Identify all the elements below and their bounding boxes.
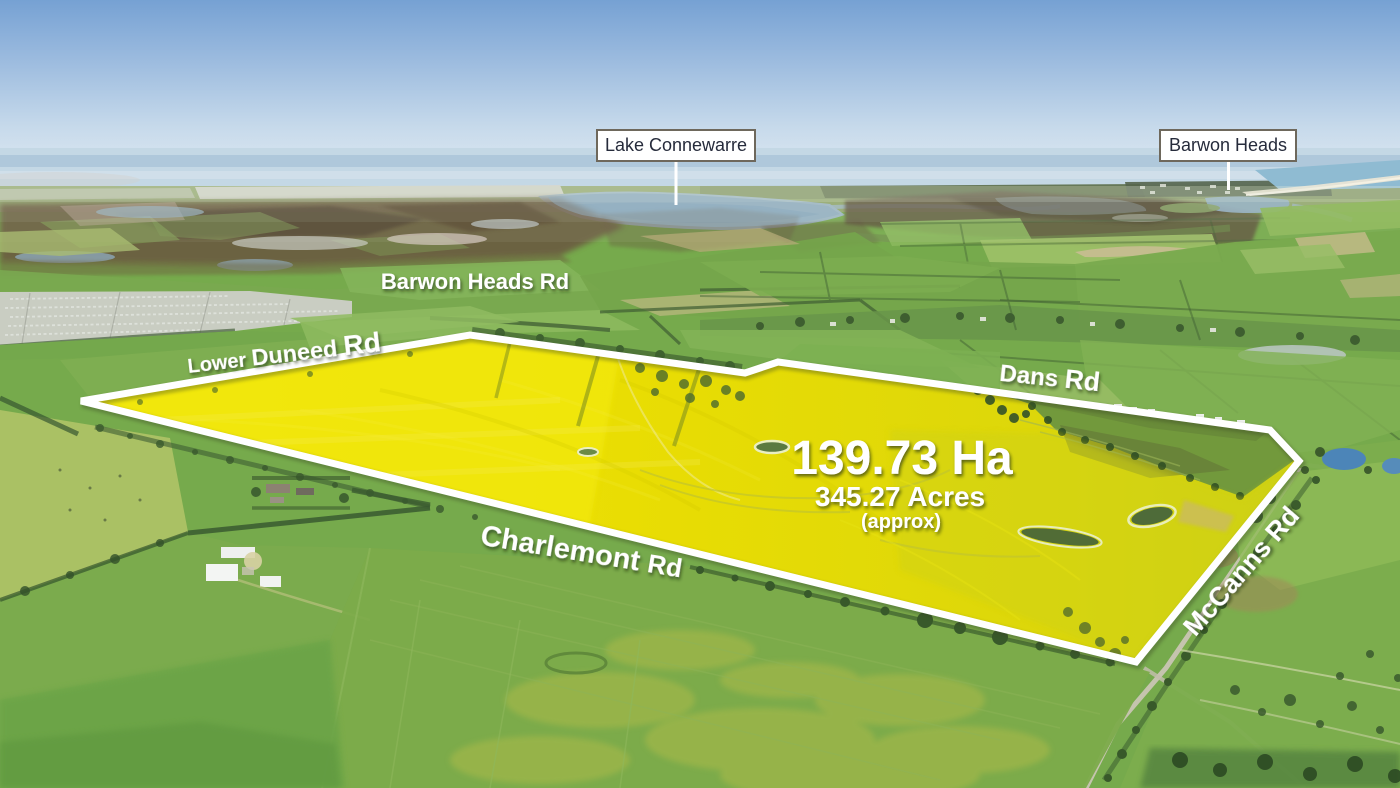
svg-text:139.73 Ha: 139.73 Ha (791, 432, 1013, 485)
svg-text:345.27 Acres: 345.27 Acres (815, 481, 985, 512)
svg-text:Lake Connewarre: Lake Connewarre (605, 135, 747, 155)
svg-text:Barwon Heads: Barwon Heads (1169, 135, 1287, 155)
svg-text:Barwon Heads Rd: Barwon Heads Rd (381, 269, 569, 294)
svg-text:(approx): (approx) (861, 511, 941, 533)
